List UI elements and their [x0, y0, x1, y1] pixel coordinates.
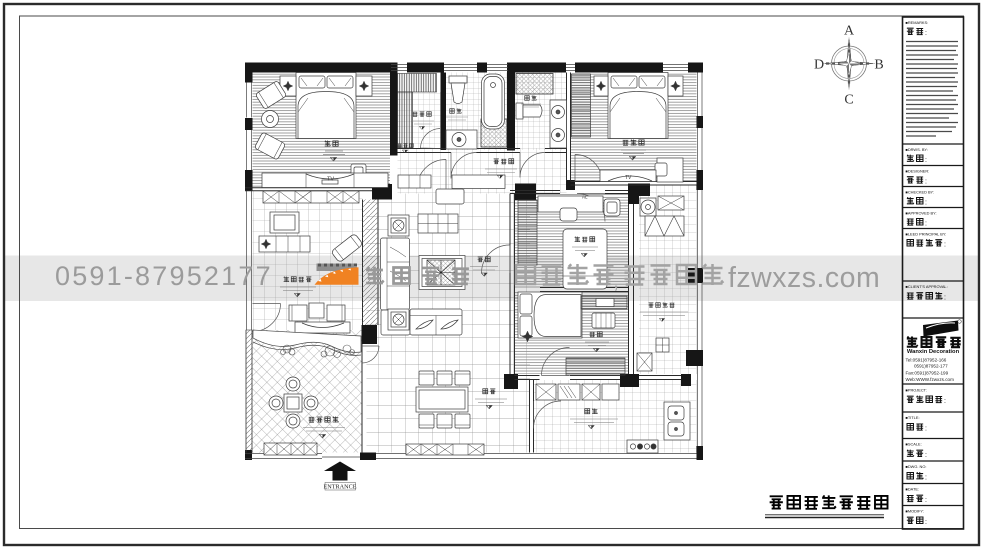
svg-text:■REMARKS:: ■REMARKS: — [906, 20, 929, 25]
svg-text:■CHECKED BY:: ■CHECKED BY: — [906, 190, 935, 195]
svg-text:■APPROVED BY:: ■APPROVED BY: — [906, 211, 937, 216]
svg-text:fzwxzs.com: fzwxzs.com — [728, 262, 880, 294]
svg-text:D: D — [814, 58, 824, 73]
svg-text:■MODIFY:: ■MODIFY: — [906, 509, 924, 514]
svg-text:■PROJECT:: ■PROJECT: — [906, 388, 927, 393]
svg-text:■DATE:: ■DATE: — [906, 487, 920, 492]
svg-text::: : — [925, 497, 927, 504]
svg-text:TV: TV — [327, 177, 334, 183]
svg-text::: : — [944, 398, 946, 405]
svg-text:Web:WWW.fzwxzs.com: Web:WWW.fzwxzs.com — [906, 377, 955, 382]
svg-text:■CLIENT'S APPROVAL:: ■CLIENT'S APPROVAL: — [906, 284, 948, 289]
svg-text:■TITLE:: ■TITLE: — [906, 415, 920, 420]
svg-text:Fax:0591)87952-199: Fax:0591)87952-199 — [906, 370, 949, 375]
svg-text::: : — [925, 221, 927, 228]
svg-text:,: , — [613, 268, 619, 293]
svg-text:0591-87952177: 0591-87952177 — [55, 261, 273, 291]
svg-text::: : — [925, 30, 927, 37]
svg-text:■SCALE:: ■SCALE: — [906, 442, 922, 447]
svg-text:B: B — [874, 58, 883, 73]
svg-text::: : — [925, 157, 927, 164]
svg-text::: : — [944, 242, 946, 249]
svg-text::: : — [925, 452, 927, 459]
svg-text:■DRWS. BY:: ■DRWS. BY: — [906, 147, 928, 152]
svg-text:0591)87952-177: 0591)87952-177 — [914, 363, 948, 368]
svg-text:C: C — [844, 93, 853, 108]
svg-text:Wanxin Decoration: Wanxin Decoration — [907, 349, 960, 355]
svg-text:■LEED PRINCIPAL BY:: ■LEED PRINCIPAL BY: — [906, 232, 947, 237]
svg-text:AL: AL — [582, 195, 588, 200]
svg-text:TV: TV — [625, 175, 632, 181]
svg-text:■DWG. NO:: ■DWG. NO: — [906, 464, 927, 469]
svg-text::: : — [944, 295, 946, 302]
svg-text::: : — [925, 475, 927, 482]
svg-text::: : — [925, 200, 927, 207]
svg-text::: : — [925, 426, 927, 433]
svg-text::: : — [925, 179, 927, 186]
svg-text:Tel:0591)87952-166: Tel:0591)87952-166 — [906, 358, 947, 363]
svg-text:■DESIGNER:: ■DESIGNER: — [906, 169, 930, 174]
svg-text:ENTRANCE: ENTRANCE — [324, 484, 357, 491]
svg-text:A: A — [844, 24, 855, 39]
svg-text::: : — [925, 519, 927, 526]
